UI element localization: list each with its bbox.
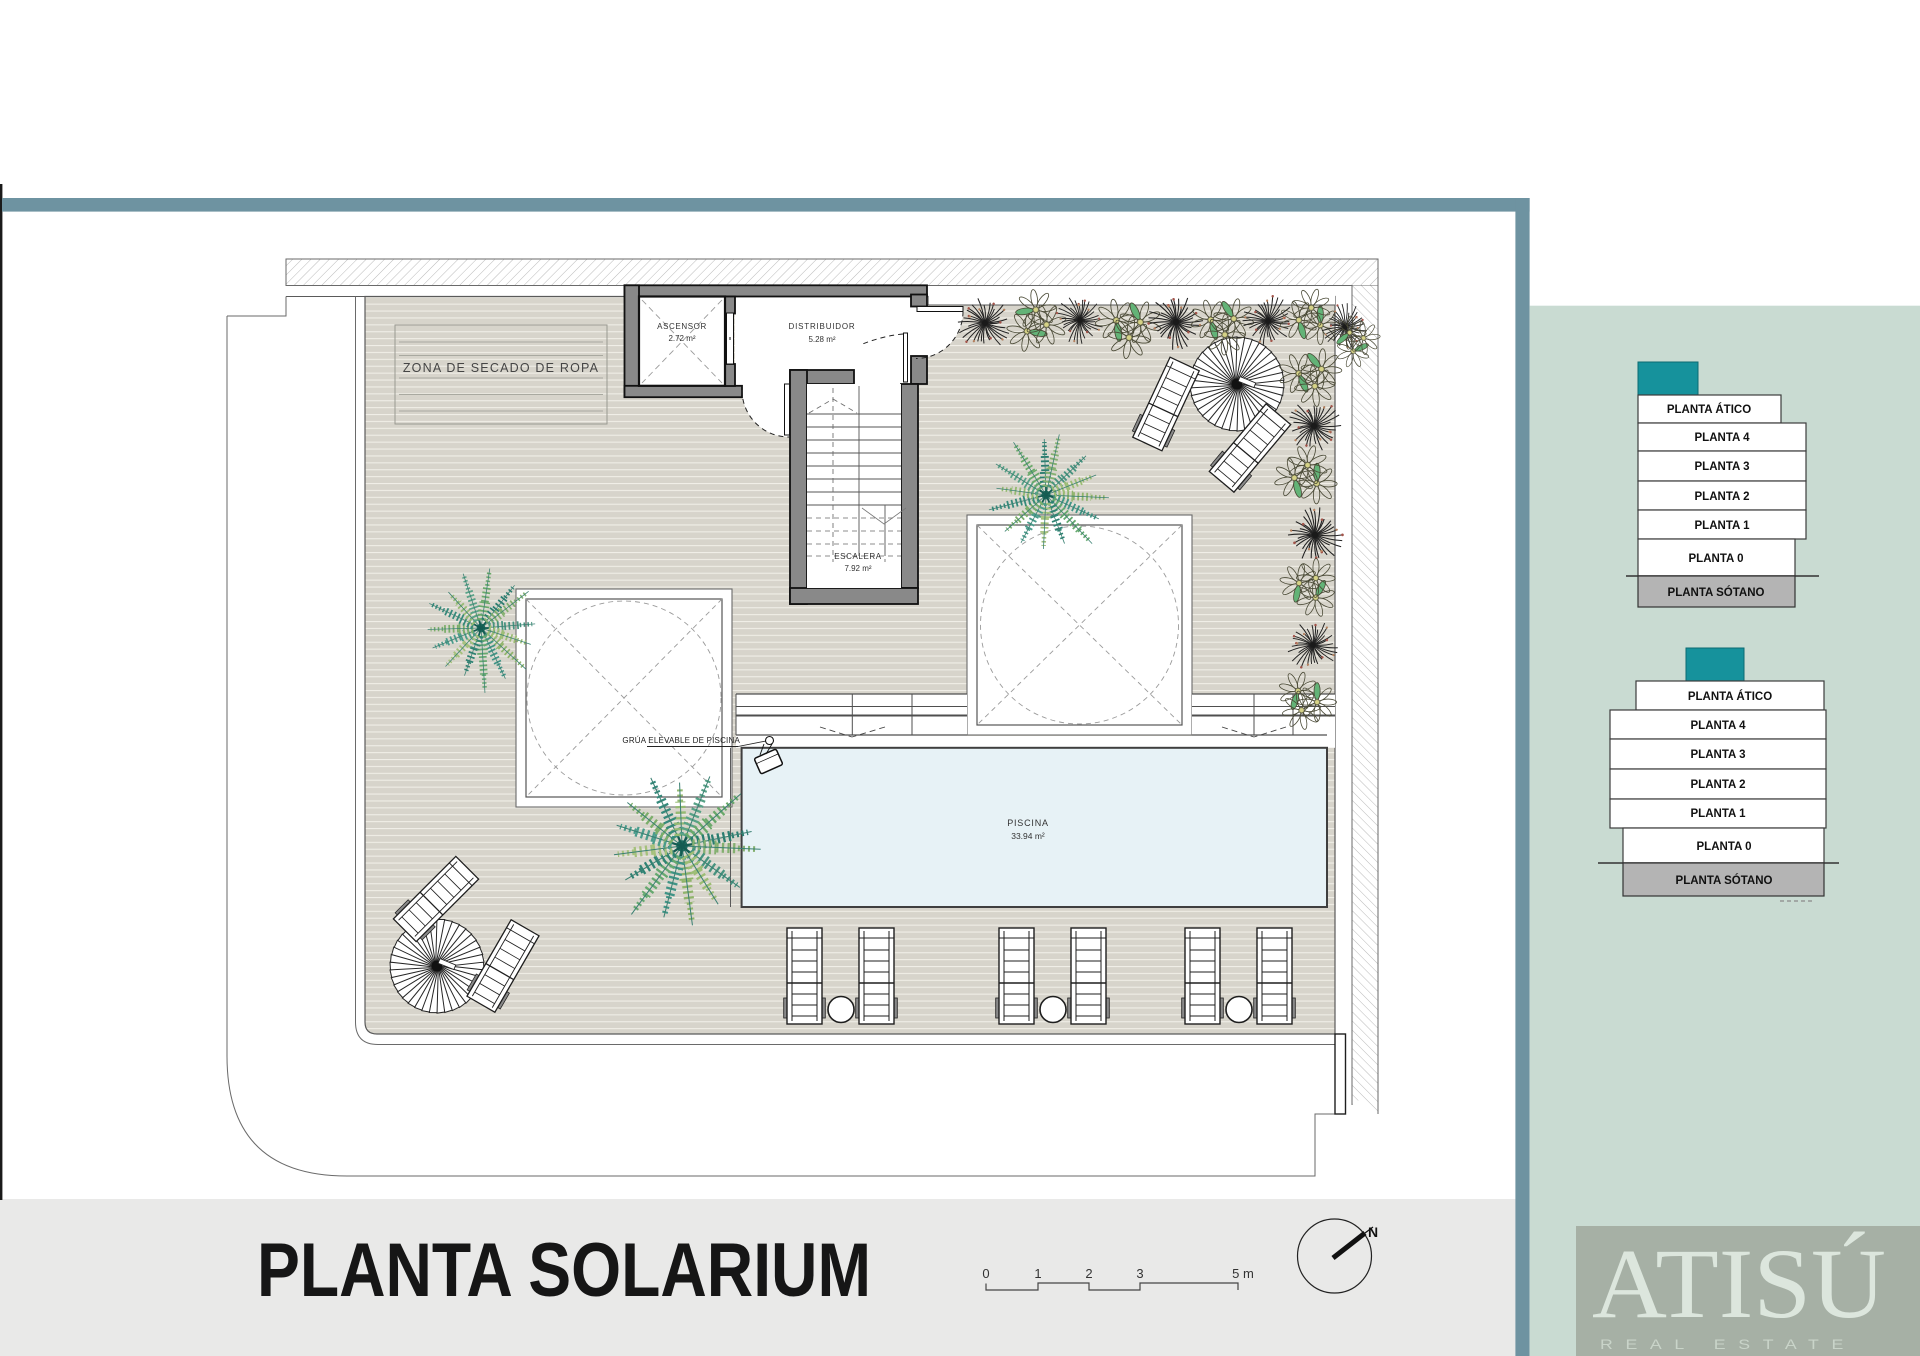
svg-text:1: 1 — [1034, 1266, 1041, 1281]
svg-text:0: 0 — [982, 1266, 989, 1281]
svg-text:N: N — [1368, 1224, 1378, 1240]
svg-text:PLANTA ÁTICO: PLANTA ÁTICO — [1667, 403, 1751, 416]
svg-text:PLANTA SÓTANO: PLANTA SÓTANO — [1676, 874, 1773, 887]
svg-text:REAL ESTATE: REAL ESTATE — [1600, 1336, 1856, 1352]
svg-text:PLANTA 1: PLANTA 1 — [1691, 808, 1747, 820]
svg-text:PLANTA 3: PLANTA 3 — [1695, 461, 1750, 473]
svg-text:3: 3 — [1136, 1266, 1143, 1281]
svg-text:PLANTA 4: PLANTA 4 — [1691, 720, 1747, 732]
svg-text:ASCENSOR: ASCENSOR — [657, 322, 707, 331]
svg-text:GRÚA ELEVABLE DE PISCINA: GRÚA ELEVABLE DE PISCINA — [622, 736, 740, 745]
svg-text:2: 2 — [1085, 1266, 1092, 1281]
svg-text:5 m: 5 m — [1232, 1266, 1254, 1281]
svg-text:DISTRIBUIDOR: DISTRIBUIDOR — [789, 322, 856, 331]
svg-text:PLANTA 2: PLANTA 2 — [1695, 491, 1750, 503]
svg-text:PLANTA 2: PLANTA 2 — [1691, 779, 1746, 791]
svg-text:5.28 m²: 5.28 m² — [808, 335, 835, 344]
svg-text:2.72 m²: 2.72 m² — [668, 334, 695, 343]
svg-text:PLANTA 0: PLANTA 0 — [1697, 841, 1752, 853]
svg-text:ESCALERA: ESCALERA — [834, 552, 882, 561]
svg-text:PLANTA 4: PLANTA 4 — [1695, 432, 1751, 444]
svg-text:ATISÚ: ATISÚ — [1592, 1228, 1886, 1339]
svg-text:PLANTA ÁTICO: PLANTA ÁTICO — [1688, 690, 1772, 703]
svg-text:PLANTA 0: PLANTA 0 — [1689, 553, 1744, 565]
svg-text:PISCINA: PISCINA — [1007, 818, 1049, 828]
svg-text:PLANTA 1: PLANTA 1 — [1695, 520, 1751, 532]
svg-text:PLANTA SÓTANO: PLANTA SÓTANO — [1668, 586, 1765, 599]
svg-text:7.92 m²: 7.92 m² — [844, 564, 871, 573]
svg-text:ZONA DE SECADO DE ROPA: ZONA DE SECADO DE ROPA — [403, 361, 599, 375]
svg-text:33.94 m²: 33.94 m² — [1011, 831, 1045, 841]
svg-text:PLANTA SOLARIUM: PLANTA SOLARIUM — [257, 1228, 871, 1313]
svg-text:PLANTA 3: PLANTA 3 — [1691, 749, 1746, 761]
